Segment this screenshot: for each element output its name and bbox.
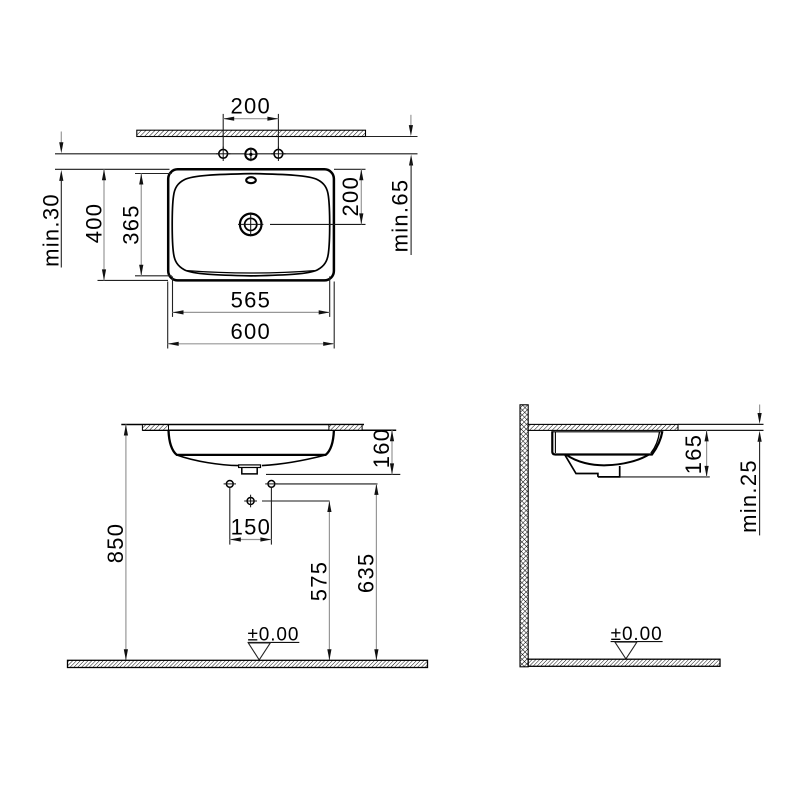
svg-text:600: 600 [230, 319, 271, 344]
svg-text:365: 365 [118, 204, 143, 245]
svg-text:min.25: min.25 [736, 459, 761, 533]
svg-text:575: 575 [306, 561, 331, 602]
svg-text:150: 150 [231, 515, 272, 540]
svg-text:min.30: min.30 [38, 193, 63, 267]
svg-text:160: 160 [369, 428, 394, 469]
svg-text:200: 200 [338, 176, 363, 217]
svg-text:min.65: min.65 [387, 179, 412, 253]
svg-text:200: 200 [230, 94, 271, 119]
svg-text:635: 635 [353, 552, 378, 593]
svg-text:565: 565 [231, 288, 272, 313]
svg-text:850: 850 [103, 523, 128, 564]
svg-text:400: 400 [81, 203, 106, 244]
svg-text:165: 165 [681, 434, 706, 475]
